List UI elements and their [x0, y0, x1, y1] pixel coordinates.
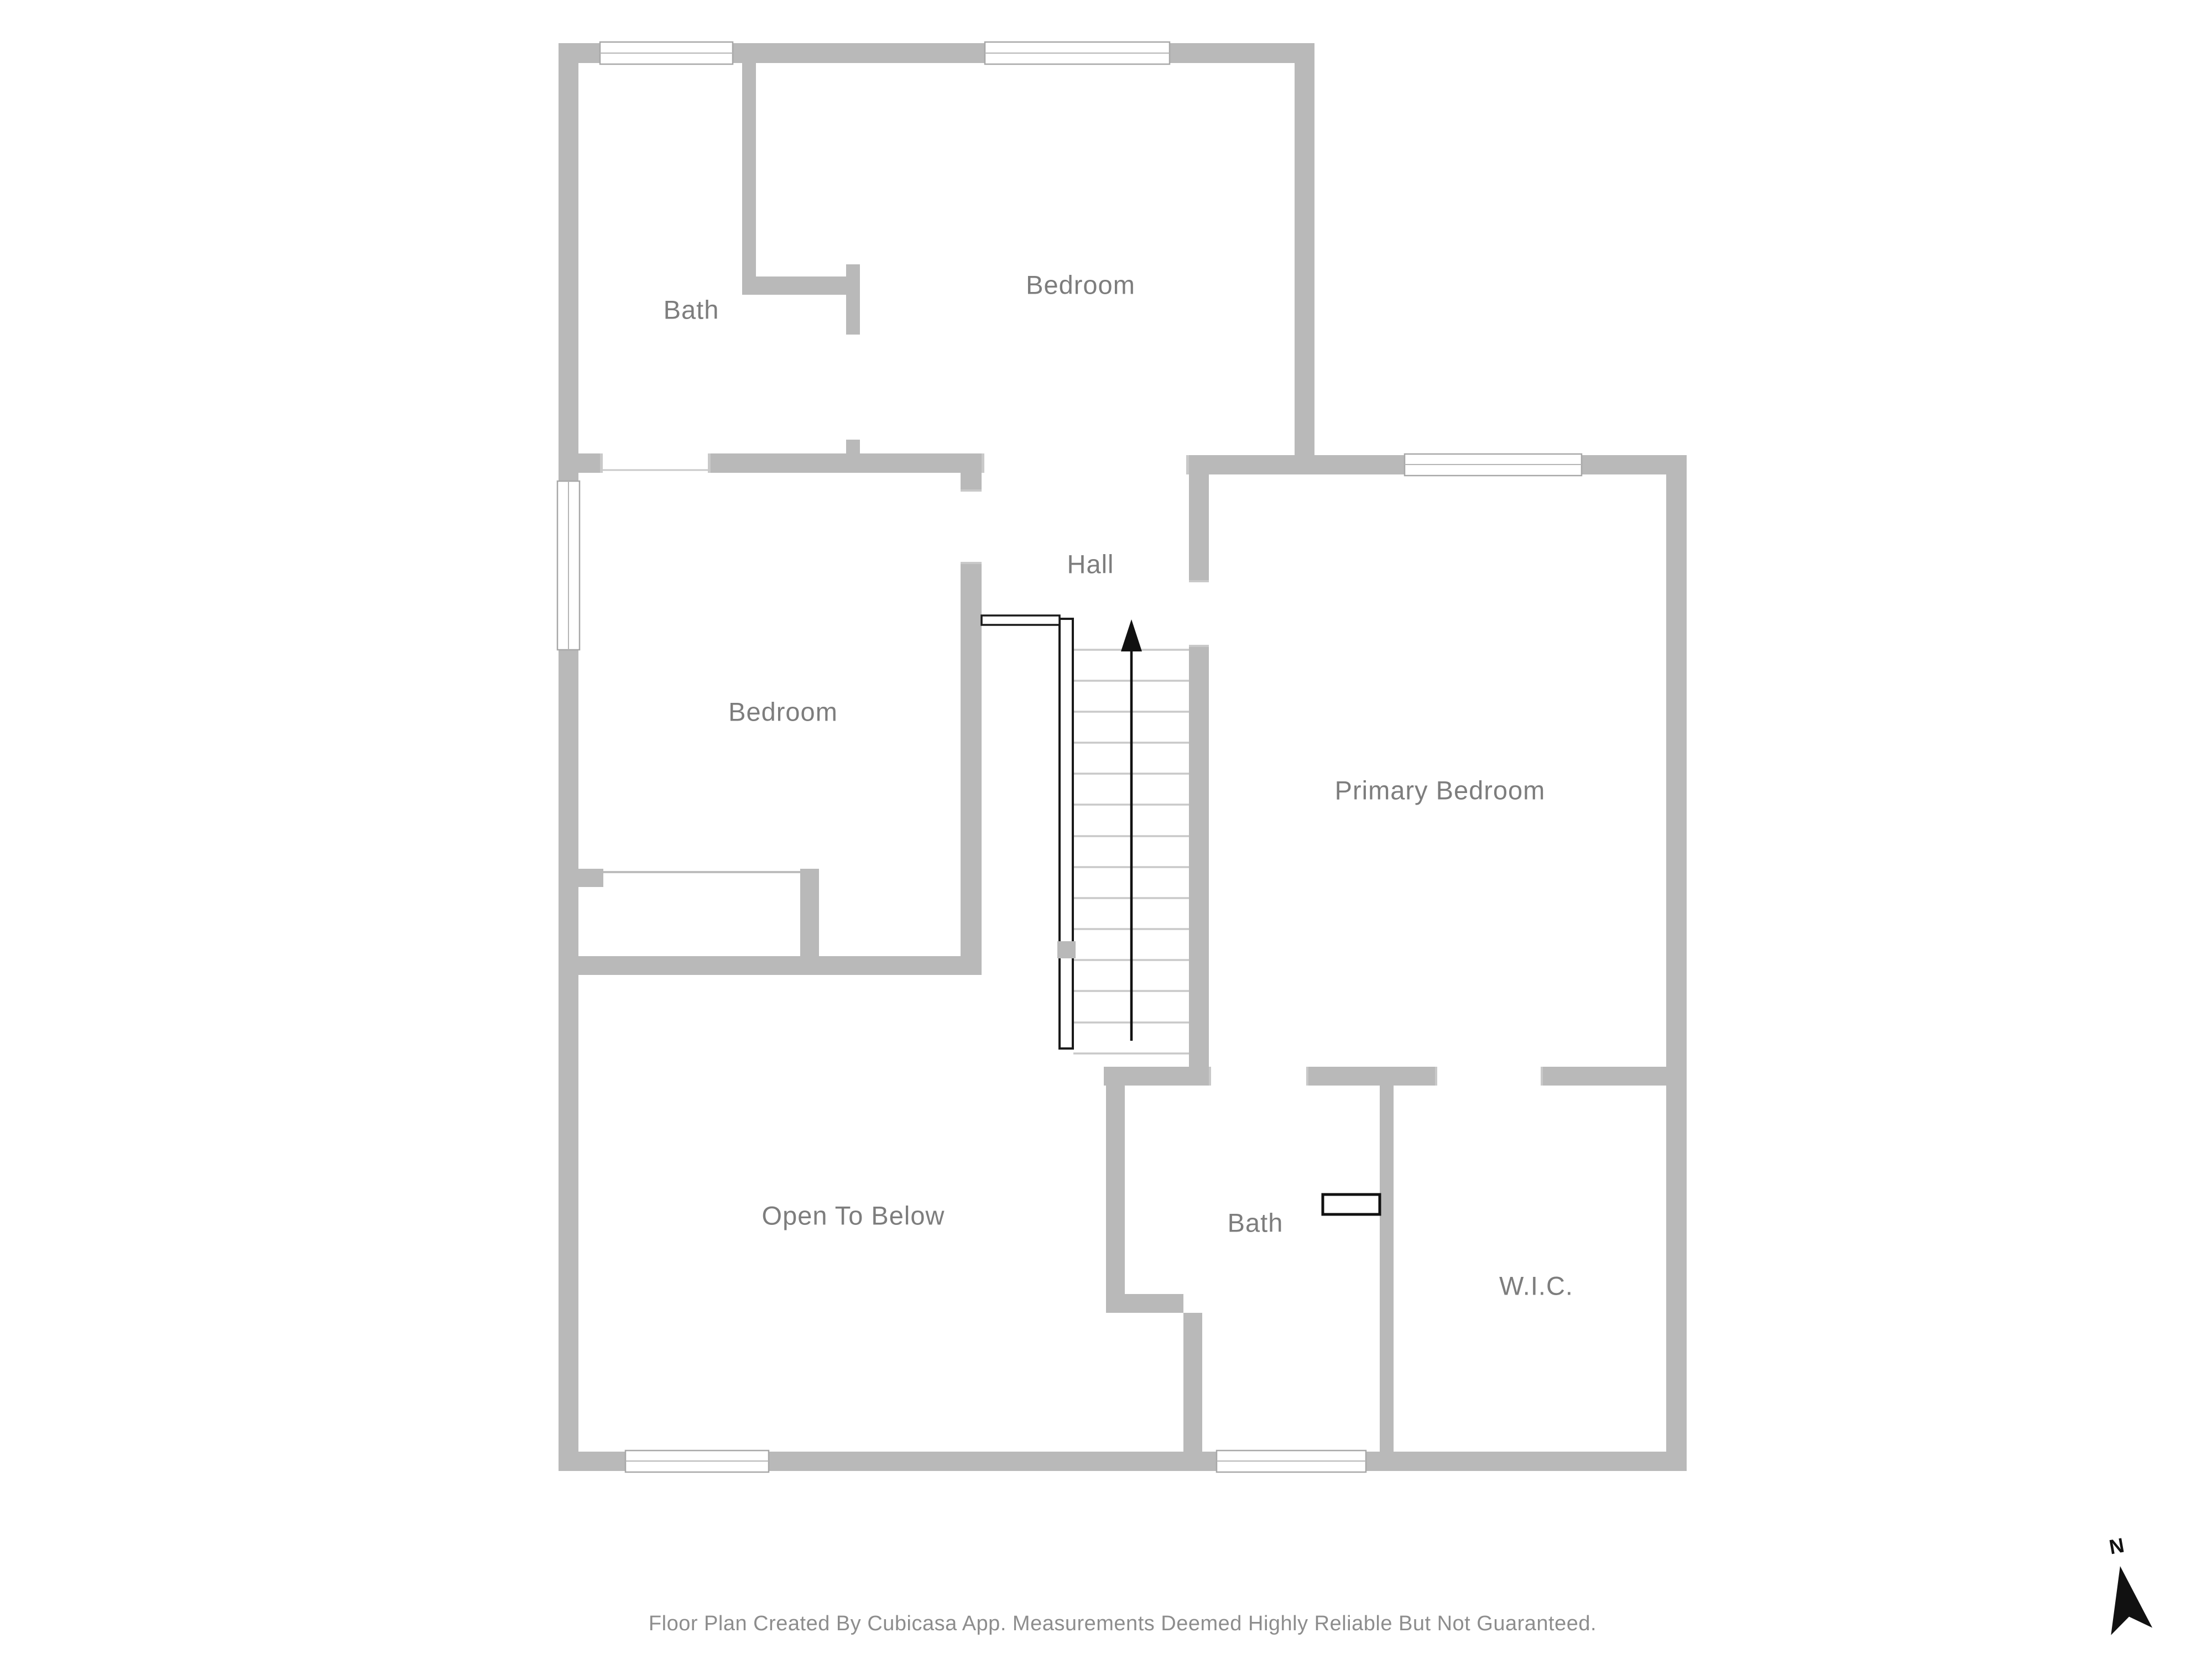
label-wic: W.I.C.	[1499, 1271, 1573, 1301]
stair-railing	[1060, 619, 1073, 1048]
wall-hall-top-main	[711, 453, 982, 473]
wall-otb-jog	[1106, 1294, 1183, 1313]
wall-otb-right-upper	[1106, 1086, 1125, 1294]
door-jamb	[1435, 1067, 1437, 1086]
room-bedroom-upper	[860, 63, 1295, 453]
door-jamb	[1541, 1067, 1543, 1086]
room-wic	[1394, 1086, 1666, 1452]
label-bath-upper: Bath	[664, 295, 719, 325]
door-jamb	[961, 489, 982, 492]
compass: N	[2094, 1531, 2153, 1635]
door-jamb	[982, 453, 984, 473]
wall-primary-left-lower	[1189, 647, 1209, 1067]
window	[985, 42, 1170, 64]
footer-disclaimer: Floor Plan Created By Cubicasa App. Meas…	[649, 1612, 1597, 1635]
wall-primary-bottom-left	[1104, 1067, 1209, 1086]
door-jamb	[961, 562, 982, 564]
door-jamb	[600, 453, 603, 473]
wall-hall-top-left-stub	[578, 453, 603, 473]
label-bedroom-middle: Bedroom	[728, 697, 838, 727]
north-arrow-icon	[2099, 1562, 2152, 1635]
label-open-to-below: Open To Below	[762, 1201, 945, 1230]
wall-top-section-right	[1295, 43, 1314, 474]
door-jamb	[1189, 645, 1209, 647]
wall-primary-bottom-mid	[1308, 1067, 1435, 1086]
wall-otb-right-lower	[1183, 1313, 1202, 1452]
wall-bath-jog	[742, 276, 846, 295]
label-primary-bedroom: Primary Bedroom	[1335, 776, 1546, 805]
floor-plan-canvas: Bath Bedroom Bedroom Hall Primary Bedroo…	[0, 0, 2212, 1659]
window	[1217, 1451, 1366, 1472]
label-bath-lower: Bath	[1228, 1208, 1284, 1238]
wall-bath-divider	[742, 63, 756, 280]
room-bath-upper	[578, 63, 742, 453]
wall-closet-right	[800, 869, 819, 956]
door-jamb	[1306, 1067, 1308, 1086]
room-primary-bedroom	[1209, 474, 1666, 1067]
window	[1405, 454, 1582, 476]
walls	[559, 43, 1687, 1471]
wall-primary-bottom-right	[1543, 1067, 1666, 1086]
wall-bath-stub-upper	[846, 264, 860, 335]
landing-handrail	[982, 615, 1060, 625]
door-jamb	[1189, 580, 1209, 582]
label-bedroom-upper: Bedroom	[1026, 270, 1135, 300]
window	[557, 481, 580, 650]
wall-closet-left	[578, 869, 603, 887]
room-hall	[982, 474, 1189, 615]
wall-exterior-left	[559, 43, 578, 1471]
window	[625, 1451, 769, 1472]
stair-direction-arrow	[1121, 619, 1142, 1041]
wall-bedroom-bottom	[559, 956, 982, 975]
wall-exterior-right	[1666, 455, 1687, 1471]
compass-north-label: N	[2107, 1534, 2126, 1559]
wall-bedroom-right-stub	[961, 473, 982, 489]
window	[600, 42, 733, 64]
staircase	[982, 615, 1189, 1053]
wall-bath-wic-divider	[1380, 1086, 1394, 1452]
label-hall: Hall	[1067, 550, 1114, 579]
room-bath-lower	[1125, 1086, 1380, 1452]
door-jamb	[1186, 455, 1189, 474]
door-jamb	[1209, 1067, 1211, 1086]
wall-primary-left-upper	[1189, 474, 1209, 580]
bathroom-vanity-counter	[1323, 1194, 1380, 1214]
wall-bedroom-right	[961, 564, 982, 956]
railing-post	[1057, 941, 1076, 958]
